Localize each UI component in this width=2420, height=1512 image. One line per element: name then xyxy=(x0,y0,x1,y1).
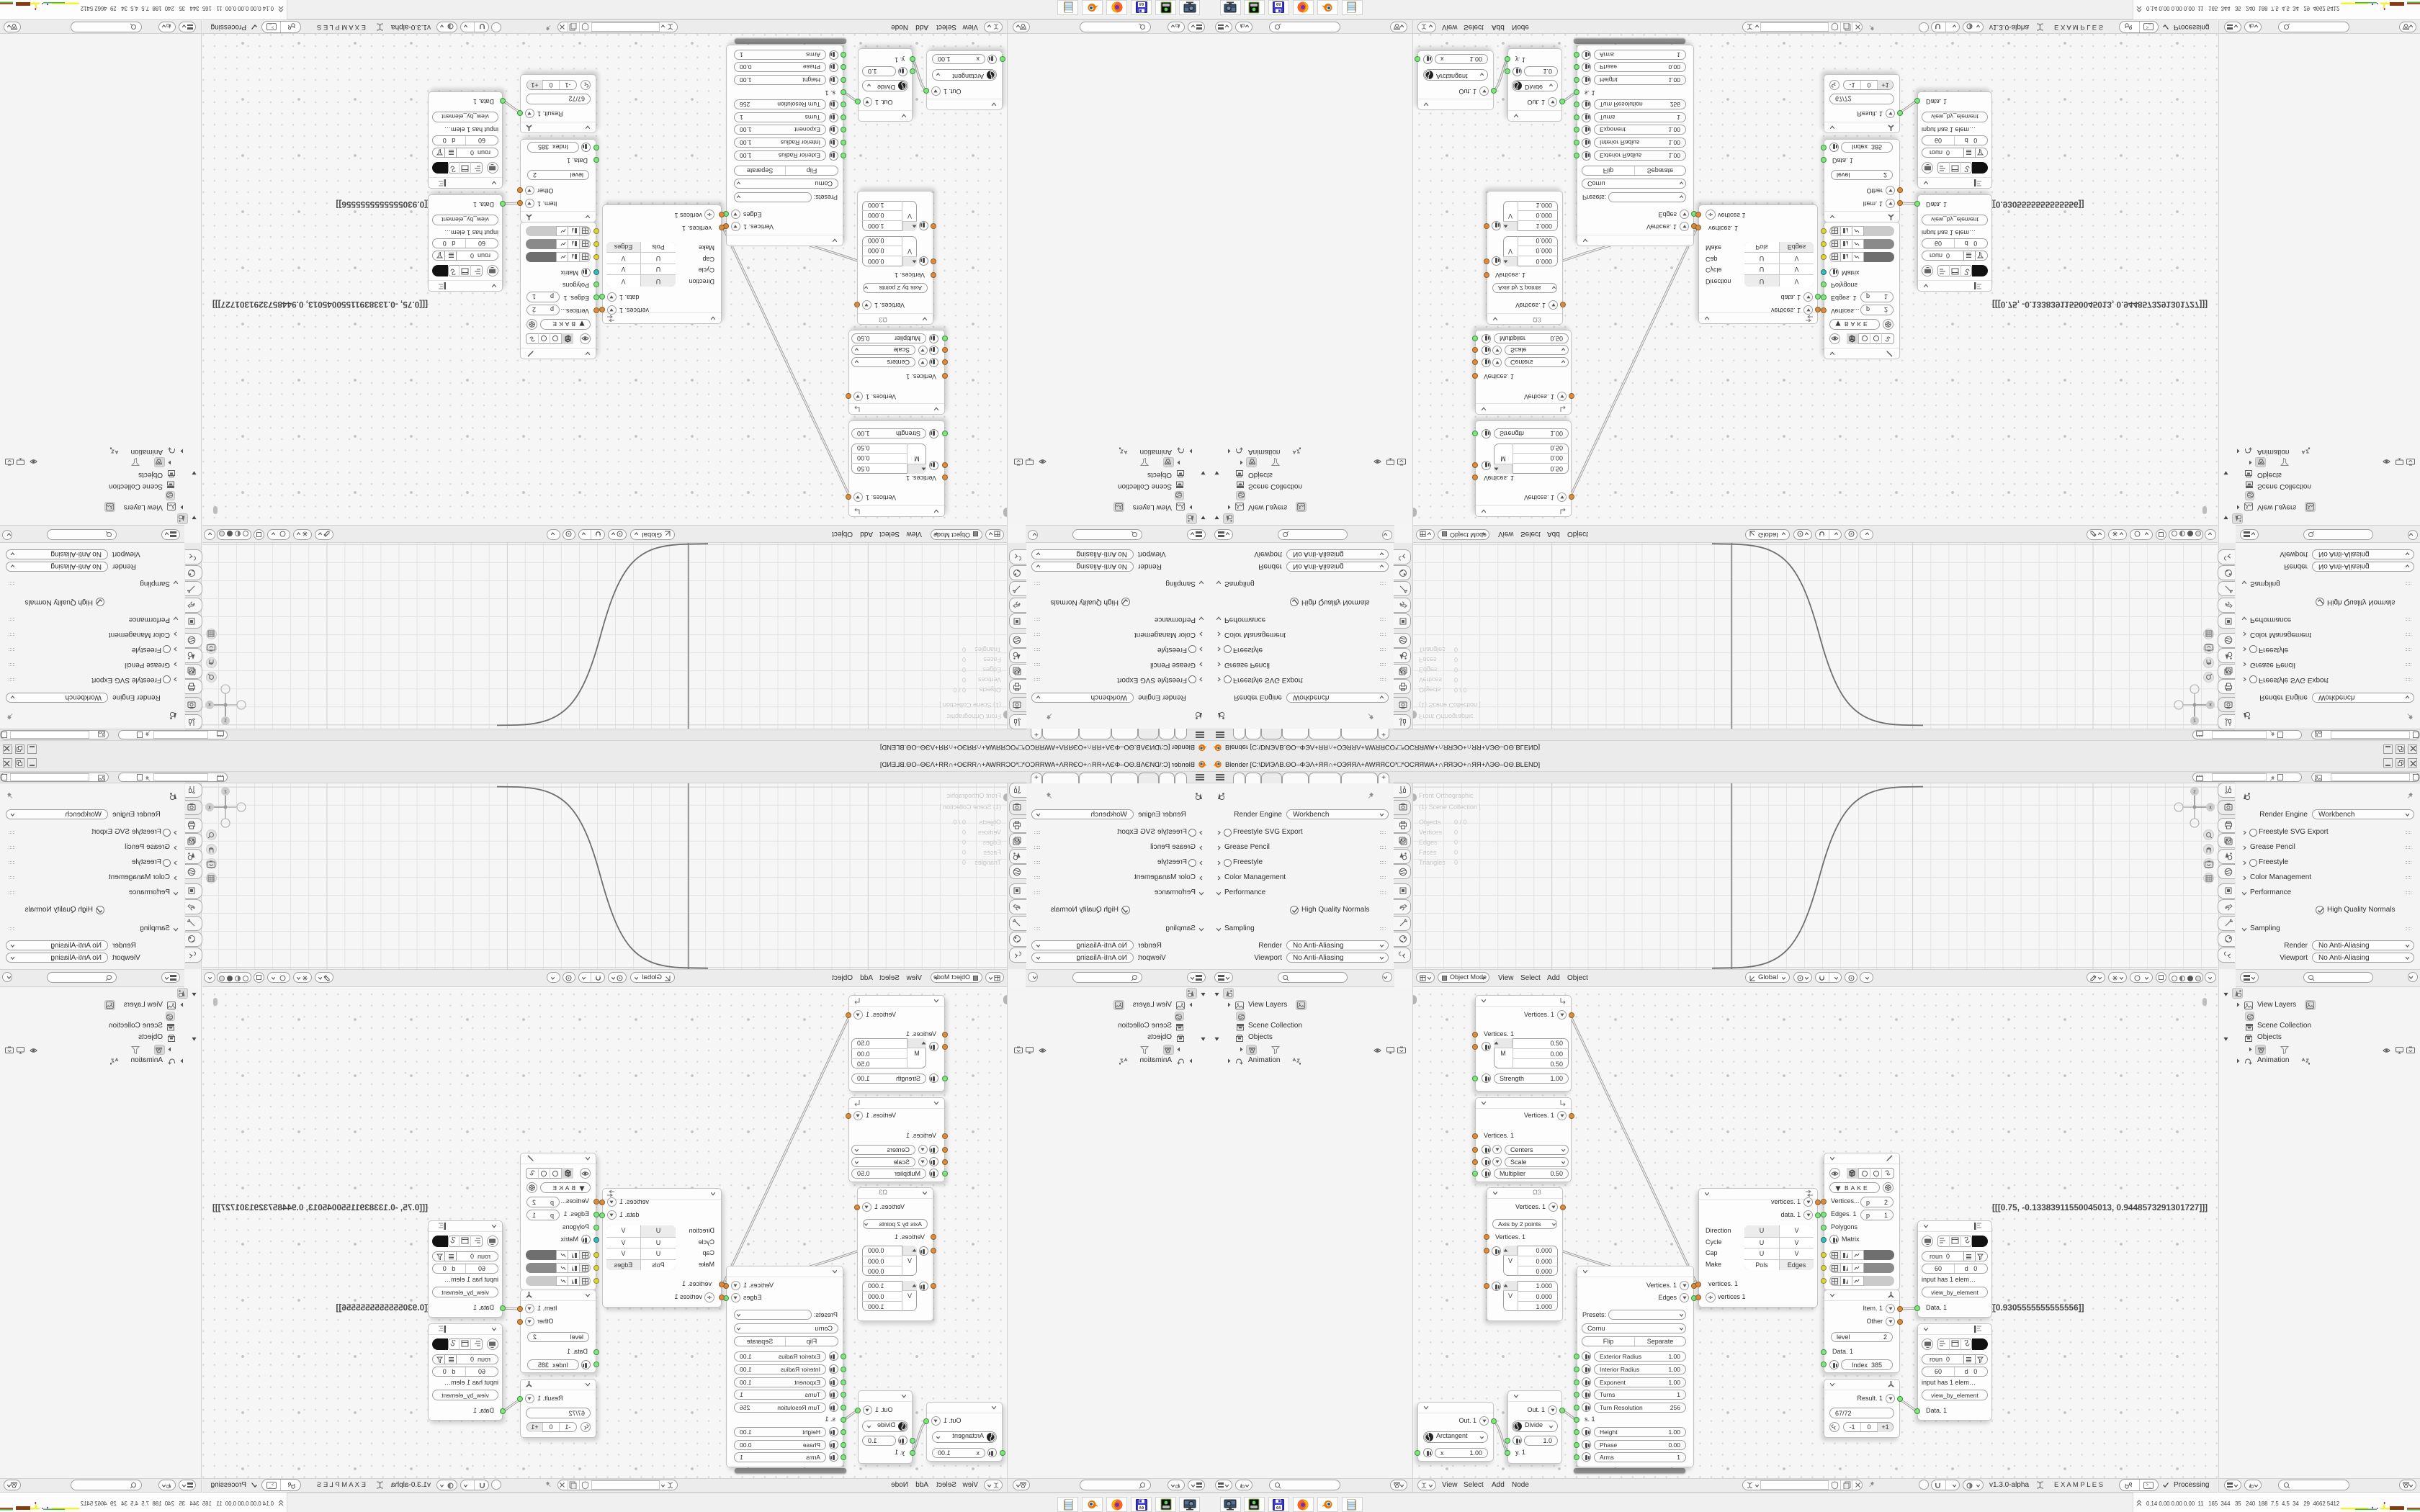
svg-text:x: x xyxy=(208,702,211,707)
svg-text:z: z xyxy=(224,718,227,723)
svg-text:64: 64 xyxy=(1276,1,1281,6)
svg-text:x: x xyxy=(208,806,211,811)
svg-text:z: z xyxy=(224,790,227,795)
svg-text:z: z xyxy=(2193,790,2196,795)
svg-text:z: z xyxy=(2193,718,2196,723)
svg-text:64: 64 xyxy=(1139,1,1144,6)
svg-text:x: x xyxy=(2209,806,2212,811)
svg-text:64: 64 xyxy=(1139,1506,1144,1511)
svg-text:64: 64 xyxy=(1276,1506,1281,1511)
svg-text:x: x xyxy=(2209,702,2212,707)
